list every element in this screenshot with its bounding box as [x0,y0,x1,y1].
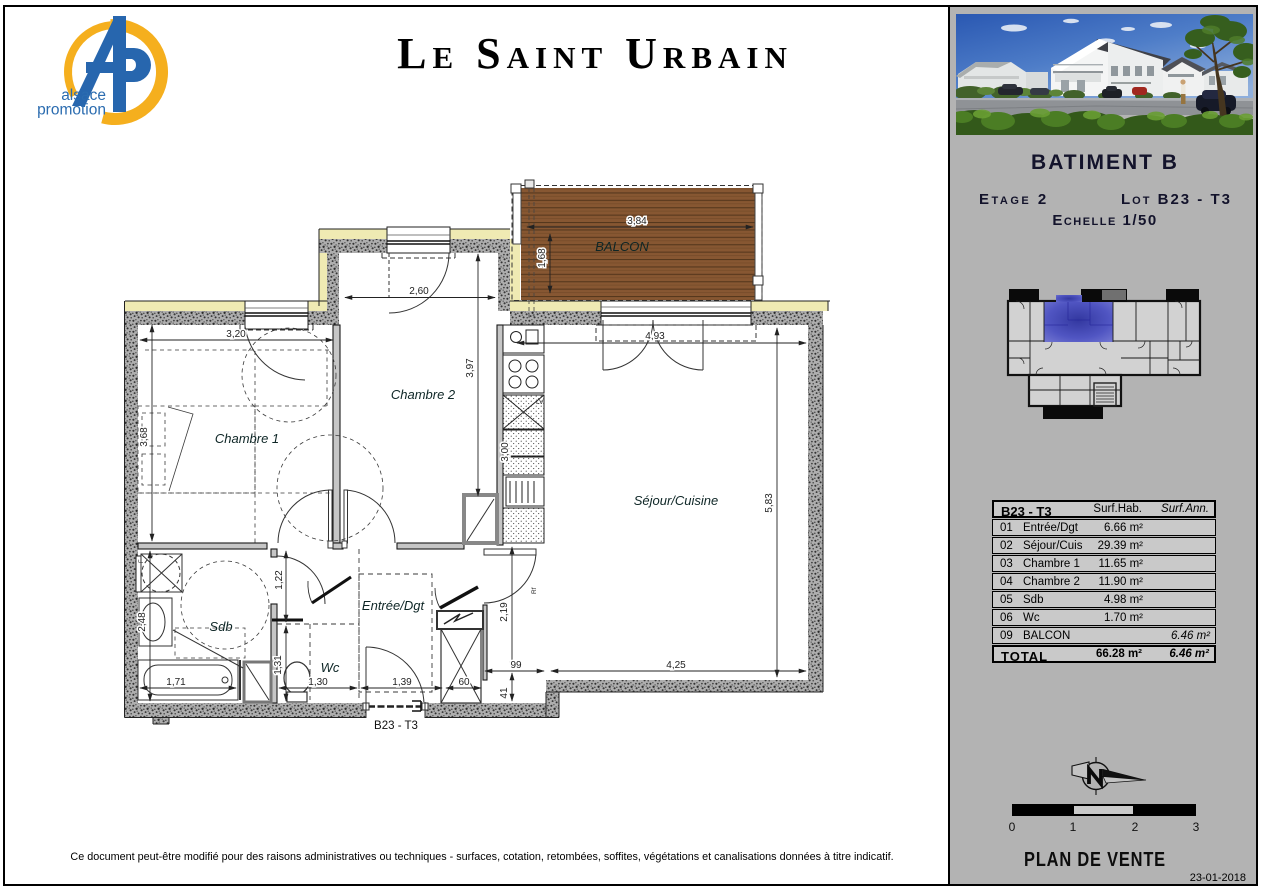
svg-text:5,83: 5,83 [764,493,775,513]
svg-text:2,48: 2,48 [137,612,148,632]
svg-text:3,97: 3,97 [465,358,476,378]
svg-text:F: F [139,559,145,563]
svg-text:BALCON: BALCON [595,239,649,254]
svg-text:Chambre 1: Chambre 1 [215,431,279,446]
svg-text:Entrée/Dgt: Entrée/Dgt [362,598,426,613]
svg-text:3,20: 3,20 [226,329,246,340]
svg-text:1,22: 1,22 [274,570,285,590]
svg-text:3,68: 3,68 [139,427,150,447]
svg-text:3,84: 3,84 [627,216,647,227]
svg-text:3,00: 3,00 [500,442,511,462]
svg-text:41: 41 [499,687,510,699]
svg-text:Chambre 2: Chambre 2 [391,387,456,402]
svg-text:99: 99 [510,660,522,671]
svg-text:1,30: 1,30 [308,677,328,688]
svg-text:Séjour/Cuisine: Séjour/Cuisine [634,493,719,508]
svg-text:Rf: Rf [531,587,538,594]
svg-text:Sdb: Sdb [209,619,232,634]
svg-text:1,68: 1,68 [537,248,548,268]
svg-text:4,25: 4,25 [666,660,686,671]
svg-text:1,71: 1,71 [166,677,186,688]
svg-text:LV: LV [536,399,544,406]
svg-text:60: 60 [458,677,470,688]
svg-text:1,31: 1,31 [273,655,284,675]
svg-text:Wc: Wc [321,660,340,675]
svg-text:1,39: 1,39 [392,677,412,688]
svg-text:2,19: 2,19 [499,602,510,622]
svg-text:4,93: 4,93 [645,331,665,342]
svg-text:2,60: 2,60 [409,286,429,297]
svg-text:B23 - T3: B23 - T3 [374,720,418,732]
